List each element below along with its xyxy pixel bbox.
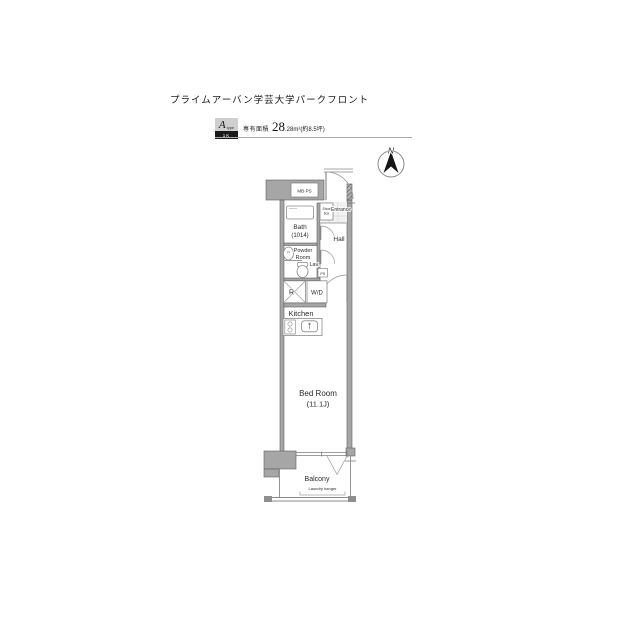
wall-bottom-pillar — [264, 451, 296, 469]
sliding-door-ticks — [296, 451, 347, 458]
balcony-label: Balcony — [305, 476, 330, 483]
lavatory-area: Lav. PS — [297, 262, 328, 278]
shoe-box-label-1: Shoe — [323, 207, 331, 211]
powder-label-1: Powder — [294, 248, 313, 254]
toilet-bowl — [297, 266, 308, 278]
bedroom-size-label: (11.1J) — [307, 400, 330, 409]
mbps-area: MB·PS — [291, 183, 318, 197]
kitchen-area: Kitchen — [283, 309, 322, 336]
wall-hatch-entrance — [347, 184, 352, 200]
bathtub — [287, 206, 314, 219]
balcony-door — [296, 451, 347, 475]
bedroom-label: Bed Room — [299, 389, 337, 398]
floor-plan: N Shoe box — [0, 0, 640, 640]
mbps-label: MB·PS — [297, 188, 311, 193]
door-opening-triangle — [327, 456, 347, 475]
appliance-area: R W/D — [284, 281, 328, 303]
bedroom-area: Bed Room (11.1J) — [299, 389, 337, 409]
shoe-box-label-2: box — [324, 212, 330, 216]
entrance-label: Entrance — [331, 207, 351, 213]
wall-lav-bottom — [284, 278, 320, 281]
laundry-hanger-label: Laundry hanger — [308, 486, 337, 491]
lav-label: Lav. — [310, 262, 320, 268]
washer-label: W/D — [311, 291, 323, 297]
laundry-hanger-bracket — [300, 492, 345, 496]
balcony-bottom-rail — [264, 498, 356, 502]
wall-kitchen-top — [284, 303, 326, 307]
bath-area: Bath (1014) — [287, 206, 314, 239]
wall-right — [347, 200, 352, 452]
bath-size-label: (1014) — [291, 233, 308, 239]
balcony-bottom-cap-right — [348, 496, 356, 502]
wash-basin — [284, 247, 294, 260]
powder-room-area: Powder Room — [284, 247, 313, 261]
fridge-label: R — [289, 290, 294, 297]
bath-label: Bath — [293, 224, 307, 231]
wall-bottom-pillar-ext — [264, 469, 279, 477]
outline-top-entrance — [324, 169, 353, 172]
powder-label-2: Room — [296, 255, 311, 261]
compass-north-label: N — [388, 146, 395, 156]
kitchen-label: Kitchen — [288, 309, 313, 318]
powder-door-arc — [321, 250, 335, 264]
floorplan-page: プライムアーバン学芸大学パークフロント A type 1K 専有面積 28 .2… — [0, 0, 640, 640]
balcony-bottom-cap-left — [264, 496, 272, 502]
hall-label: Hall — [333, 236, 345, 243]
wall-bath-powder — [284, 243, 317, 246]
north-compass: N — [378, 146, 404, 178]
ps-label: PS — [320, 272, 325, 276]
